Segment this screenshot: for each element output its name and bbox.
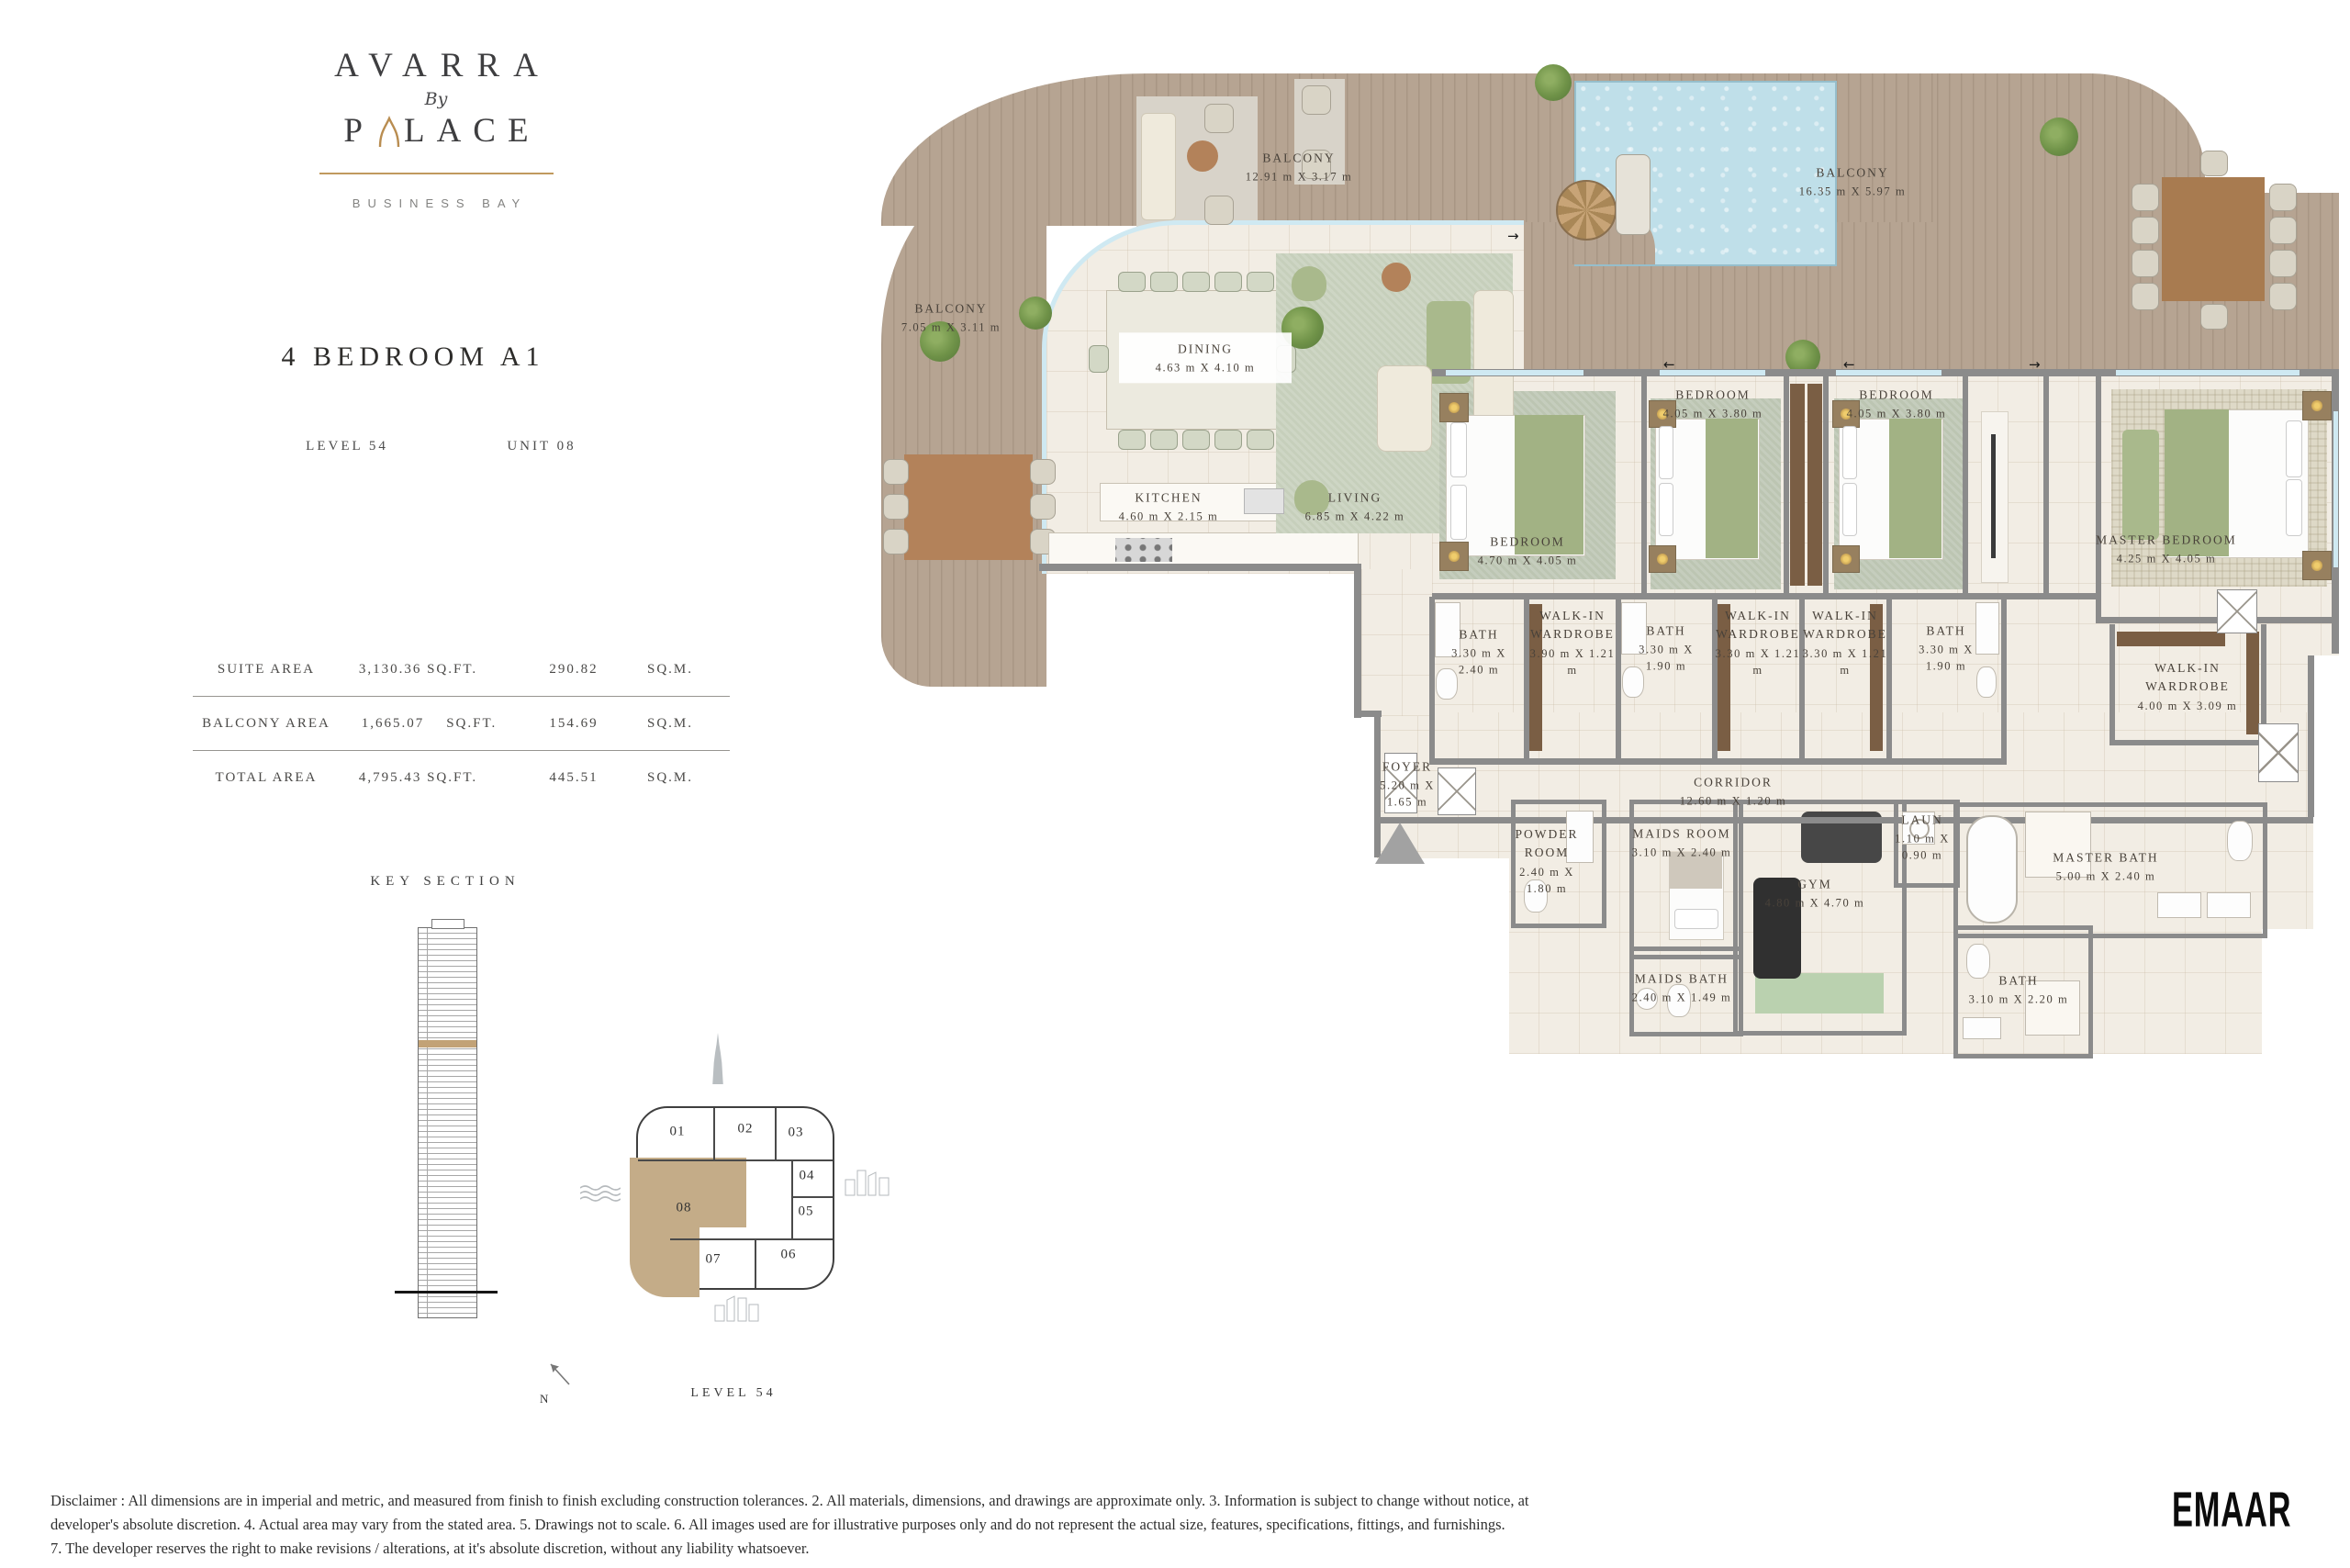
exterior-mask <box>2262 929 2317 1056</box>
key-plan-unit-07: 07 <box>706 1252 722 1268</box>
disclaimer-line: Disclaimer : All dimensions are in imper… <box>50 1489 1721 1513</box>
dining-chair <box>1118 272 1146 292</box>
outdoor-chair <box>2200 304 2228 330</box>
key-plan-unit-06: 06 <box>781 1248 797 1263</box>
emaar-logo: EMAAR <box>2172 1482 2291 1538</box>
brand-palace-rest: LACE <box>404 111 541 151</box>
wardrobe-cabinet <box>2117 632 2225 646</box>
wall <box>2001 597 2007 762</box>
wardrobe-cabinet <box>1790 384 1805 586</box>
key-plan-unit-01: 01 <box>670 1125 686 1140</box>
armchair <box>1292 266 1326 301</box>
exterior-mask <box>2313 655 2341 830</box>
wall <box>2109 740 2266 745</box>
disclaimer-line: 7. The developer reserves the right to m… <box>50 1537 1721 1561</box>
plant-icon <box>1019 297 1052 330</box>
closet <box>2258 723 2299 782</box>
room-label-wic-3: WALK-IN WARDROBE3.30 m X 1.21 m <box>1799 607 1891 678</box>
area-label: TOTAL AREA <box>193 770 340 786</box>
outdoor-chair <box>2269 250 2297 277</box>
outdoor-dining-table <box>2162 177 2265 301</box>
dining-chair <box>1214 430 1242 450</box>
window <box>2116 370 2300 375</box>
pool-lounger <box>1616 154 1651 235</box>
outdoor-sofa <box>1141 113 1176 220</box>
wall <box>2043 376 2049 595</box>
pillow <box>2286 420 2302 477</box>
area-sqft: 1,665.07 <box>362 716 425 732</box>
table-row: BALCONY AREA 1,665.07SQ.FT. 154.69 SQ.M. <box>193 697 730 751</box>
bed-blanket <box>1889 419 1942 558</box>
area-label: SUITE AREA <box>193 662 340 678</box>
unit-label: UNIT 08 <box>477 439 606 454</box>
outdoor-chair <box>2132 283 2159 310</box>
burj-khalifa-icon <box>707 1033 729 1084</box>
disclaimer-line: developer's absolute discretion. 4. Actu… <box>50 1513 1721 1537</box>
room-label-maids-room: MAIDS ROOM3.10 m X 2.40 m <box>1613 824 1751 860</box>
outdoor-chair <box>883 494 909 520</box>
area-label: BALCONY AREA <box>193 716 340 732</box>
room-label-balcony-top: BALCONY12.91 m X 3.17 m <box>1230 149 1368 185</box>
dining-chair <box>1150 272 1178 292</box>
room-label-bath-1: BATH3.30 m X 2.40 m <box>1439 625 1518 678</box>
area-sqm-unit: SQ.M. <box>629 770 711 786</box>
wall <box>1039 564 1360 571</box>
outdoor-chair <box>883 529 909 554</box>
room-label-corridor: CORRIDOR12.60 m X 1.20 m <box>1605 773 1862 809</box>
exterior-mask <box>1377 858 1509 1054</box>
coffee-table <box>1377 365 1432 452</box>
wall <box>1354 564 1361 718</box>
area-table: SUITE AREA 3,130.36 SQ.FT. 290.82 SQ.M. … <box>193 643 730 804</box>
outdoor-chair <box>2132 184 2159 211</box>
outdoor-armchair <box>1204 104 1234 133</box>
room-label-bath-4: BATH3.10 m X 2.20 m <box>1964 971 2074 1007</box>
outdoor-armchair <box>1204 196 1234 225</box>
room-label-master-wic: WALK-IN WARDROBE4.00 m X 3.09 m <box>2137 659 2238 714</box>
area-sqm: 445.51 <box>519 770 629 786</box>
tower-cap <box>431 919 464 929</box>
waves-icon <box>580 1184 621 1204</box>
table-row: TOTAL AREA 4,795.43 SQ.FT. 445.51 SQ.M. <box>193 751 730 804</box>
keyplan-divider <box>775 1108 777 1159</box>
outdoor-chair <box>2269 217 2297 244</box>
area-sqm-unit: SQ.M. <box>629 662 711 678</box>
outdoor-chair <box>1030 459 1056 485</box>
north-label: N <box>540 1392 548 1406</box>
toilet-icon <box>2227 821 2253 861</box>
slide-arrow-icon: → <box>2029 356 2041 373</box>
key-section-tower <box>418 927 477 1318</box>
room-label-powder-room: POWDER ROOM2.40 m X 1.80 m <box>1505 825 1589 897</box>
wall <box>1429 758 2007 765</box>
key-plan-unit-08-highlight <box>630 1158 699 1297</box>
tv-icon <box>1991 434 1996 558</box>
brand-divider <box>319 173 554 174</box>
room-label-wic-1: WALK-IN WARDROBE3.90 m X 1.21 m <box>1527 607 1618 678</box>
room-label-bedroom-2: BEDROOM4.05 m X 3.80 m <box>1639 386 1786 421</box>
level-label: LEVEL 54 <box>283 439 411 454</box>
slide-arrow-icon: ← <box>1663 356 1675 373</box>
window <box>2333 411 2338 567</box>
area-sqft: 4,795.43 SQ.FT. <box>359 770 477 786</box>
plant-icon <box>1535 64 1572 101</box>
brand-logo: AVARRA By P LACE BUSINESS BAY <box>271 46 601 210</box>
dining-chair <box>1182 430 1210 450</box>
nightstand <box>2302 551 2332 580</box>
nightstand <box>1439 393 1469 422</box>
room-label-bath-2: BATH3.30 m X 1.90 m <box>1627 622 1706 675</box>
key-plan-unit-05: 05 <box>799 1204 814 1220</box>
outdoor-chair <box>1030 494 1056 520</box>
pillow <box>1842 483 1857 536</box>
gym-box <box>1733 800 1907 1036</box>
keyplan-divider <box>713 1108 715 1159</box>
slide-arrow-icon: ← <box>1843 356 1855 373</box>
area-sqft-unit: SQ.FT. <box>446 716 497 732</box>
balcony-deck-left <box>881 162 1046 687</box>
skyline-icon <box>714 1293 762 1322</box>
window <box>1660 370 1765 375</box>
sink-icon <box>2207 892 2251 918</box>
sink-icon <box>1963 1017 2001 1039</box>
sink-icon <box>2157 892 2201 918</box>
room-label-bedroom-3: BEDROOM4.05 m X 3.80 m <box>1823 386 1970 421</box>
outdoor-armchair <box>1302 85 1331 115</box>
wardrobe-cabinet <box>2246 632 2259 734</box>
keyplan-divider <box>638 1159 833 1161</box>
outdoor-chair <box>883 459 909 485</box>
key-plan-level-label: LEVEL 54 <box>636 1386 831 1401</box>
outdoor-coffee-table <box>1187 140 1218 172</box>
outdoor-chair <box>2132 217 2159 244</box>
bench <box>2122 430 2159 540</box>
entry-hall-floor <box>1361 569 1432 716</box>
dining-chair <box>1247 272 1274 292</box>
disclaimer: Disclaimer : All dimensions are in imper… <box>50 1489 1721 1561</box>
tower-floor-number-column <box>427 928 428 1317</box>
key-plan: 01 02 03 04 05 06 07 08 LEVEL 54 <box>569 1033 900 1428</box>
key-plan-unit-03: 03 <box>789 1126 804 1141</box>
area-sqm: 290.82 <box>519 662 629 678</box>
room-label-dining: DINING4.63 m X 4.10 m <box>1119 332 1292 383</box>
room-label-laundry: LAUN1.10 m X 0.90 m <box>1888 811 1956 864</box>
room-label-balcony-left: BALCONY7.05 m X 3.11 m <box>891 299 1011 335</box>
tower-highlight-level-54 <box>419 1040 476 1047</box>
room-label-bedroom-1: BEDROOM4.70 m X 4.05 m <box>1445 532 1610 568</box>
wall <box>2109 624 2115 745</box>
nightstand <box>1649 545 1676 573</box>
skyline-icon <box>845 1167 892 1196</box>
room-label-wic-2: WALK-IN WARDROBE3.30 m X 1.21 m <box>1712 607 1804 678</box>
table-row: SUITE AREA 3,130.36 SQ.FT. 290.82 SQ.M. <box>193 643 730 697</box>
keyplan-divider <box>791 1196 833 1198</box>
brand-by: By <box>271 89 601 109</box>
brand-name: AVARRA <box>271 46 601 85</box>
dining-chair <box>1118 430 1146 450</box>
wall <box>2096 376 2101 622</box>
maids-room-box <box>1629 800 1743 959</box>
dining-chair <box>1182 272 1210 292</box>
nightstand <box>1832 545 1860 573</box>
room-label-foyer: FOYER5.20 m X 1.65 m <box>1366 757 1449 811</box>
dining-chair <box>1214 272 1242 292</box>
area-sqm: 154.69 <box>519 716 629 732</box>
room-label-living: LIVING6.85 m X 4.22 m <box>1272 488 1438 524</box>
room-label-master-bath: MASTER BATH5.00 m X 2.40 m <box>2014 848 2198 884</box>
window <box>1446 370 1583 375</box>
side-table <box>1382 263 1411 292</box>
room-label-master-bedroom: MASTER BEDROOM4.25 m X 4.05 m <box>2075 531 2258 566</box>
north-arrow-icon <box>543 1357 575 1388</box>
outdoor-chair <box>2200 151 2228 176</box>
entry-arrow-icon <box>1375 823 1425 864</box>
brand-location: BUSINESS BAY <box>271 196 601 210</box>
outdoor-dining-table <box>904 454 1033 560</box>
umbrella-icon <box>1556 180 1617 241</box>
palace-arch-icon <box>376 116 402 149</box>
key-plan-unit-08: 08 <box>677 1201 692 1216</box>
pillow <box>1450 422 1467 477</box>
room-label-bath-3: BATH3.30 m X 1.90 m <box>1907 622 1986 675</box>
area-sqft: 3,130.36 SQ.FT. <box>359 662 477 678</box>
outdoor-chair <box>2269 184 2297 211</box>
dining-chair <box>1150 430 1178 450</box>
key-plan-unit-02: 02 <box>738 1122 754 1137</box>
slide-arrow-icon: → <box>1507 228 1519 244</box>
dining-chair <box>1247 430 1274 450</box>
pillow <box>1659 483 1673 536</box>
key-plan-unit-04: 04 <box>800 1169 815 1184</box>
tower-ground-line <box>395 1291 498 1294</box>
outdoor-chair <box>2269 283 2297 310</box>
floor-plan-brochure-page: AVARRA By P LACE BUSINESS BAY 4 BEDROOM … <box>0 0 2350 1568</box>
floor-plan: → ← ← → BALCONY12.91 m X 3.17 m BALCONY7… <box>881 26 2345 1081</box>
pillow <box>1659 426 1673 479</box>
room-label-gym: GYM4.80 m X 4.70 m <box>1741 875 1888 911</box>
key-plan-building-outline <box>636 1106 834 1290</box>
key-section-title: KEY SECTION <box>367 874 523 890</box>
brand-palace: P LACE <box>271 111 601 151</box>
wall <box>2308 655 2314 817</box>
pillow <box>1842 426 1857 479</box>
page-title: 4 BEDROOM A1 <box>220 342 606 373</box>
room-label-maids-bath: MAIDS BATH2.40 m X 1.49 m <box>1627 969 1737 1005</box>
pillow <box>2286 479 2302 536</box>
stove-icon <box>1115 538 1172 562</box>
keyplan-divider <box>755 1238 756 1288</box>
closet <box>2217 589 2257 633</box>
plant-icon <box>2040 118 2078 156</box>
keyplan-divider <box>670 1238 833 1240</box>
bathtub-icon <box>1966 815 2018 924</box>
keyplan-divider <box>791 1159 793 1238</box>
wardrobe-cabinet <box>1807 384 1822 586</box>
outdoor-chair <box>2132 250 2159 277</box>
brand-palace-p: P <box>343 111 375 151</box>
room-label-kitchen: KITCHEN4.60 m X 2.15 m <box>1091 488 1247 524</box>
room-label-balcony-right: BALCONY16.35 m X 5.97 m <box>1770 163 1935 199</box>
area-sqm-unit: SQ.M. <box>629 716 711 732</box>
pillow <box>1450 485 1467 540</box>
bed-blanket <box>1706 419 1758 558</box>
dining-chair <box>1089 345 1109 373</box>
nightstand <box>2302 391 2332 420</box>
